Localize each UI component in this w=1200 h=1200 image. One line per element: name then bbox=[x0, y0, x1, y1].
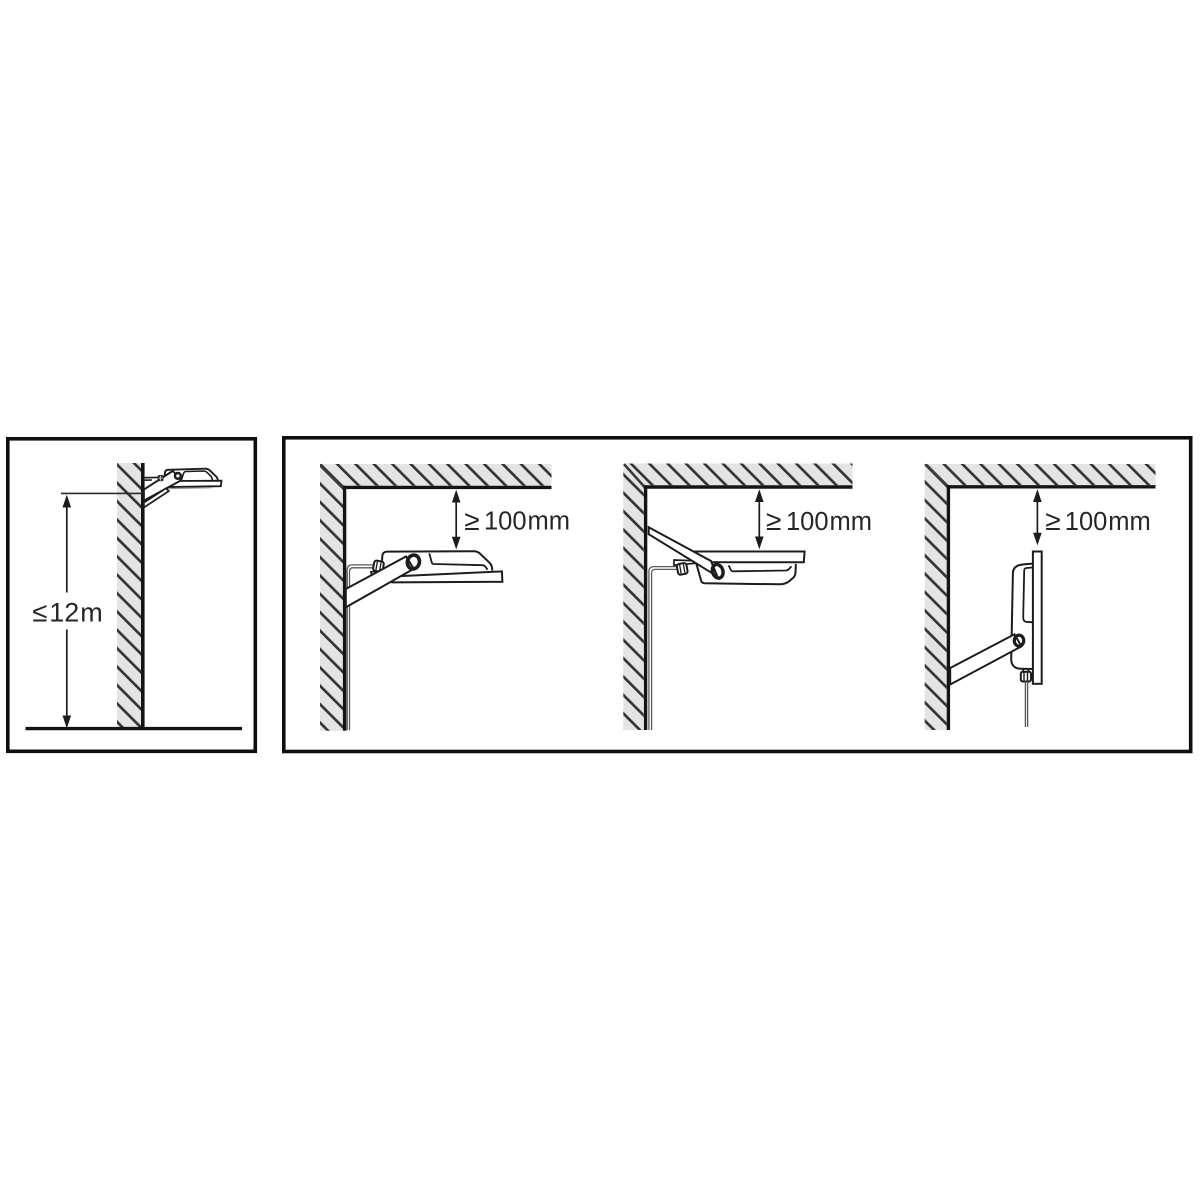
svg-text:mm: mm bbox=[830, 508, 872, 536]
svg-text:100: 100 bbox=[1065, 508, 1108, 536]
svg-text:mm: mm bbox=[1108, 508, 1150, 536]
svg-text:12: 12 bbox=[49, 597, 79, 627]
svg-text:≤: ≤ bbox=[32, 596, 47, 627]
svg-text:100: 100 bbox=[484, 508, 527, 536]
svg-text:m: m bbox=[80, 597, 103, 627]
svg-text:≥: ≥ bbox=[1045, 505, 1060, 536]
svg-text:≥: ≥ bbox=[464, 505, 479, 536]
svg-text:mm: mm bbox=[528, 508, 570, 536]
svg-text:≥: ≥ bbox=[766, 505, 781, 536]
svg-text:100: 100 bbox=[786, 508, 829, 536]
